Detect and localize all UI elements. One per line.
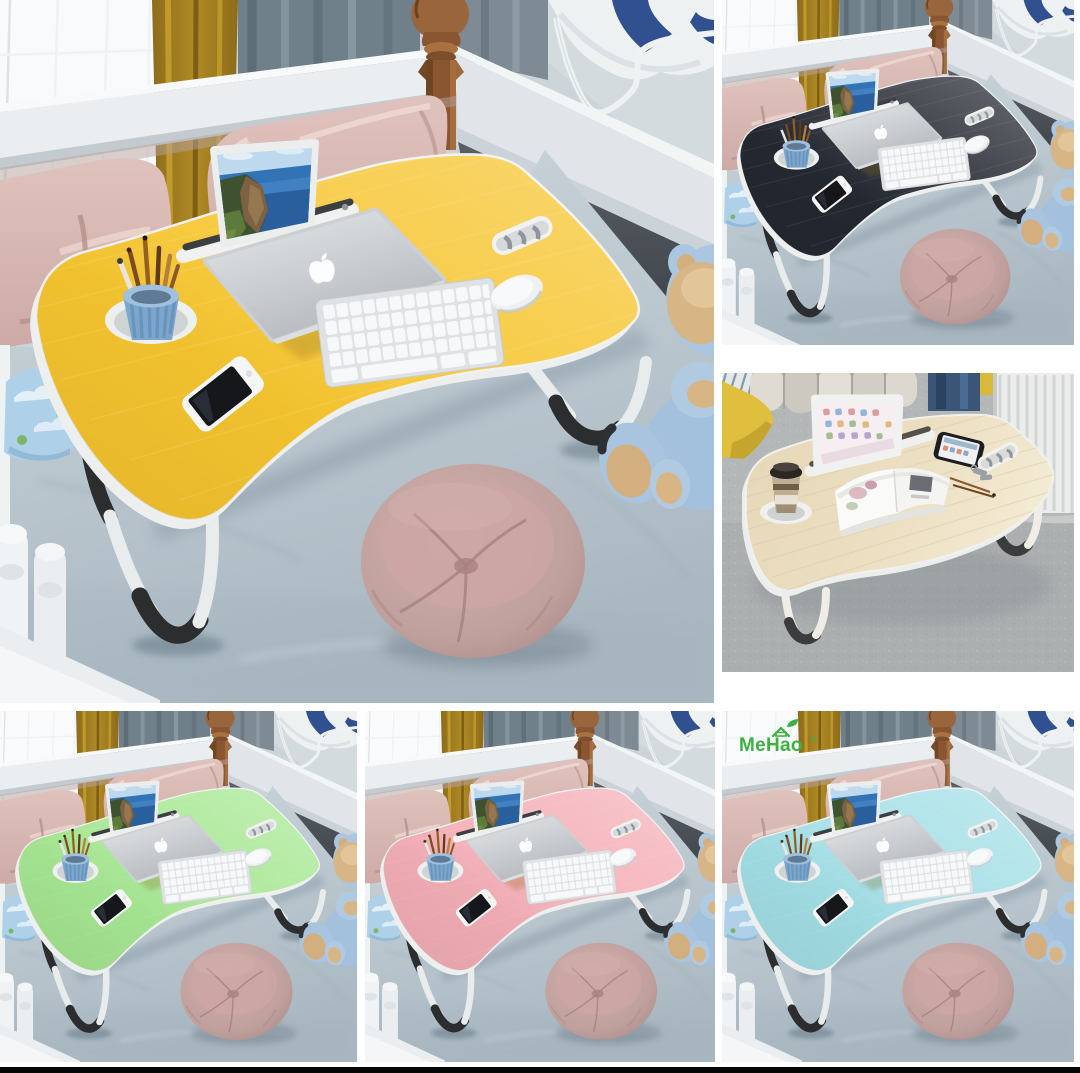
svg-text:MeHao: MeHao (739, 735, 803, 756)
